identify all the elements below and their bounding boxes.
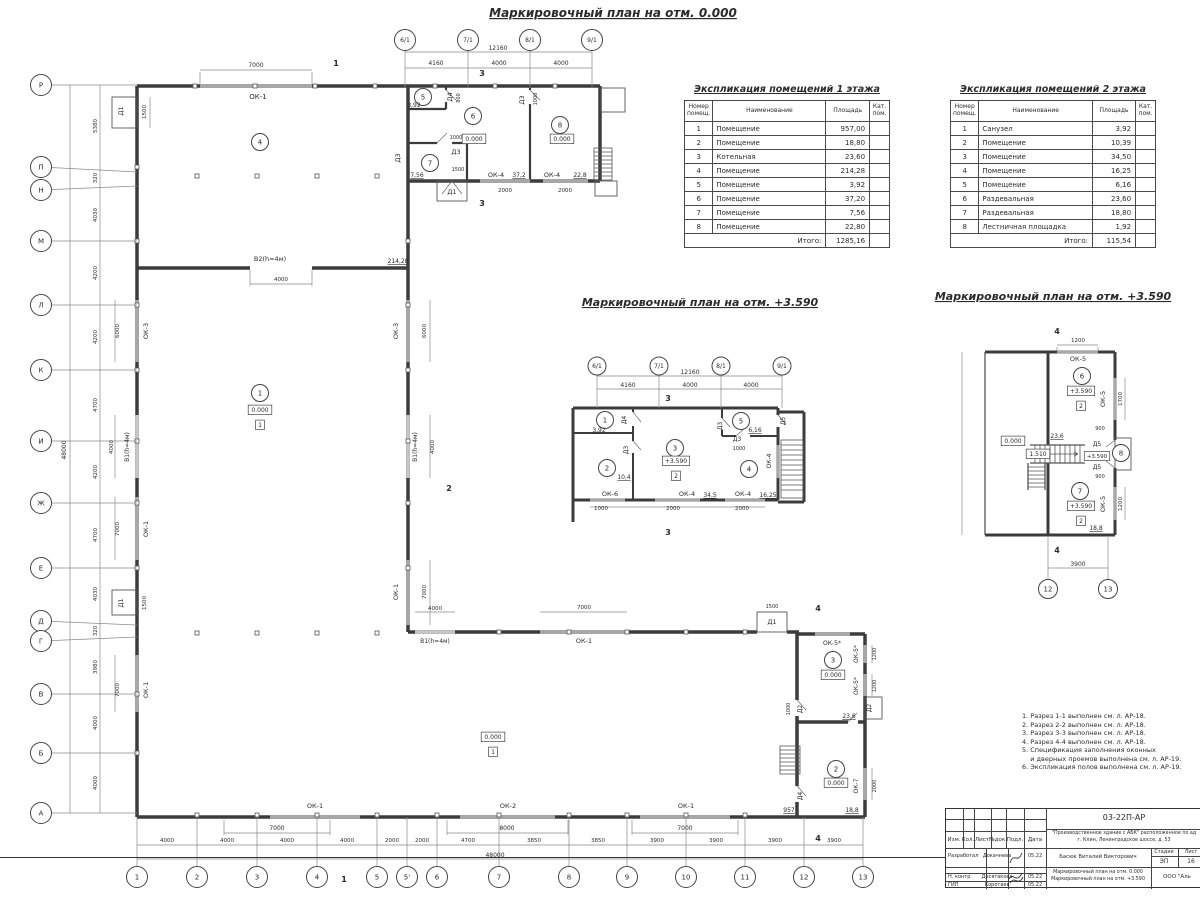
plan-label: 900 [1095, 426, 1105, 432]
plan-label: 23,6 [842, 713, 856, 720]
col-name: Наименование [979, 101, 1093, 122]
plan-label: 7000 [577, 605, 591, 611]
room-number: 6 [685, 192, 713, 206]
plan-label: Д4 [797, 792, 804, 801]
note-line: 4. Разрез 4-4 выполнен см. л. АР-18. [1022, 738, 1200, 747]
room-number: 2 [951, 136, 979, 150]
room-cat [1136, 150, 1156, 164]
plan-label: 1200 [1118, 497, 1124, 511]
bubble-label: 1 [135, 874, 139, 882]
signature-marks [1008, 849, 1024, 887]
plan-label: Д1 [447, 188, 456, 196]
bubble-label: 7 [428, 160, 432, 168]
plan-label: 7000 [422, 585, 428, 599]
plan-label: Д3 [733, 436, 742, 443]
bubble-label: 8 [567, 874, 571, 882]
plan-label: 3,92 [592, 427, 606, 434]
project-name-line1: "Производственное здание с АБК" располож… [1052, 831, 1196, 836]
plan-label: 5380 [93, 119, 99, 133]
room-cat [870, 164, 890, 178]
plan-label: 1500 [766, 604, 779, 610]
plan-label: 1 [491, 749, 495, 756]
bubble-label: 1 [258, 390, 262, 398]
note-line: 5. Спецификация заполнения оконных [1022, 746, 1200, 755]
plan-label: 0.000 [824, 672, 841, 679]
plan-label: 18,8 [1089, 525, 1103, 532]
plan-label: ОК-1 [678, 802, 694, 810]
plan-label: ОК-5* [823, 640, 841, 647]
plan-label: В1(h=4м) [412, 432, 419, 462]
bubble-label: 8/1 [525, 37, 535, 44]
role-developer: Разработал [948, 853, 978, 859]
main-plan-title: Маркировочный план на отм. 0.000 [489, 6, 737, 20]
plan-label: Д4 [446, 92, 454, 101]
plan-label: 214,28 [388, 258, 409, 265]
col-data: Дата [1028, 837, 1042, 843]
col-list: Лист [975, 837, 989, 843]
plan-label: 1500 [142, 105, 148, 119]
table-row: 2 Помещение 10,39 [951, 136, 1156, 150]
tb-title-line1: Маркировочный план на отм. 0.000 [1053, 870, 1143, 875]
plan-label: Д2 [797, 705, 804, 714]
room-name: Помещение [979, 178, 1093, 192]
plan-label: ОК-3 [142, 323, 150, 339]
plan-label: 1200 [872, 648, 878, 661]
plan-label: Д4 [621, 416, 628, 425]
plan-label: 4 [815, 834, 821, 843]
plan-label: Д3 [394, 153, 402, 162]
room-name: Лестничная площадка [979, 220, 1093, 234]
plan-label: 1200 [1071, 338, 1085, 344]
sheet-number: 16 [1187, 858, 1195, 865]
plan-label: 320 [93, 172, 99, 183]
bubble-label: 2 [195, 874, 199, 882]
bubble-label: 5 [375, 874, 379, 882]
plan-label: В1(h=4м) [124, 432, 131, 462]
room-number: 8 [685, 220, 713, 234]
bubble-label: 3 [255, 874, 259, 882]
plan-label: 7000 [248, 62, 263, 69]
plan-label: ОК-1 [307, 802, 323, 810]
plan-label: Д5 [1093, 464, 1102, 471]
col-podl: Подл. [1007, 837, 1024, 843]
plan-label: 4000 [93, 716, 99, 730]
notes-list: 1. Разрез 1-1 выполнен см. л. АР-18.2. Р… [1022, 712, 1200, 772]
room-number: 4 [685, 164, 713, 178]
doc-number: 03-22П-АР [1103, 813, 1145, 822]
room-area: 18,80 [826, 136, 870, 150]
bubble-label: М [38, 238, 44, 246]
plan-label: 1200 [872, 680, 878, 693]
room-area: 214,28 [826, 164, 870, 178]
room-area: 3,92 [1092, 122, 1135, 136]
room-area: 3,92 [826, 178, 870, 192]
plan-label: Д3 [717, 422, 724, 431]
plan-label: 6000 [115, 324, 121, 338]
plan-label: 4200 [93, 330, 99, 344]
date-developer: 05.22 [1028, 853, 1042, 859]
room-cat [870, 136, 890, 150]
total-value: 1285,16 [826, 234, 870, 248]
bubble-label: Е [39, 565, 43, 573]
plan-label: 4 [815, 604, 821, 613]
room-cat [870, 150, 890, 164]
plan-label: 2000 [735, 506, 749, 512]
plan-label: 4 [1054, 327, 1060, 336]
room-name: Помещение [713, 206, 826, 220]
room-cat [870, 206, 890, 220]
bubble-label: 13 [859, 874, 868, 882]
plan-label: 4000 [491, 60, 506, 67]
plan-label: ОК-2 [500, 802, 516, 810]
plan-label: 7000 [269, 825, 284, 832]
bubble-label: Л [38, 302, 43, 310]
bubble-label: А [39, 810, 44, 818]
table-row: 3 Котельная 23,60 [685, 150, 890, 164]
room-name: Помещение [713, 122, 826, 136]
bubble-label: И [38, 438, 43, 446]
col-area: Площадь [826, 101, 870, 122]
plan-label: ОК-4 [679, 490, 695, 498]
plan-label: 1500 [452, 167, 465, 173]
plan-label: 4000 [340, 838, 354, 844]
col-number: Номер помещ. [685, 101, 713, 122]
col-area: Площадь [1092, 101, 1135, 122]
plan-label: 34,5 [703, 492, 717, 499]
bubble-label: 10 [682, 874, 691, 882]
bubble-label: Н [38, 187, 43, 195]
bubble-label: 6 [471, 113, 476, 121]
plan-label: 2 [1079, 518, 1083, 525]
bubble-label: 7 [1078, 488, 1082, 496]
table-row: 8 Помещение 22,80 [685, 220, 890, 234]
plan-label: 4000 [109, 440, 115, 454]
table-row: 4 Помещение 16,25 [951, 164, 1156, 178]
plan-label: 4000 [93, 776, 99, 790]
room-number: 1 [951, 122, 979, 136]
table-row: 6 Помещение 37,20 [685, 192, 890, 206]
room-name: Помещение [713, 220, 826, 234]
note-line: 3. Разрез 3-3 выполнен см. л. АР-18. [1022, 729, 1200, 738]
bubble-label: 2 [605, 465, 609, 473]
bubble-label: 11 [741, 874, 750, 882]
table-row: 5 Помещение 6,16 [951, 178, 1156, 192]
note-line: и дверных проемов выполнена см. л. АР-19… [1022, 755, 1200, 764]
plan-label: 3900 [1070, 561, 1085, 568]
room-name: Раздевальная [979, 192, 1093, 206]
bubble-label: Р [39, 82, 43, 90]
plan-label: 4030 [93, 587, 99, 601]
plan-label: 22,8 [573, 172, 587, 179]
plan-label: 3850 [527, 838, 541, 844]
plan-label: 1000 [733, 446, 746, 452]
table-row: 5 Помещение 3,92 [685, 178, 890, 192]
plan-label: 4030 [93, 208, 99, 222]
bubble-label: К [39, 367, 44, 375]
bubble-label: 5' [404, 874, 410, 882]
total-label: Итого: [685, 234, 826, 248]
bubble-label: 4 [747, 466, 752, 474]
bubble-label: Б [39, 750, 44, 758]
plan-label: 2000 [385, 838, 399, 844]
plan-label: ОК-5 [1099, 391, 1107, 407]
room-area: 6,16 [1092, 178, 1135, 192]
bubble-label: Д [38, 618, 44, 626]
plan-label: 3850 [591, 838, 605, 844]
bubble-label: 6 [435, 874, 440, 882]
plan-label: 0.000 [827, 780, 844, 787]
company-name: ООО "Аль [1163, 874, 1191, 880]
room-number: 5 [951, 178, 979, 192]
table-row: 3 Помещение 34,50 [951, 150, 1156, 164]
plan-label: 4000 [428, 606, 442, 612]
room-number: 3 [951, 150, 979, 164]
room-name: Котельная [713, 150, 826, 164]
table-row: 6 Раздевальная 23,60 [951, 192, 1156, 206]
room-number: 6 [951, 192, 979, 206]
room-cat [1136, 178, 1156, 192]
bubble-label: 9/1 [777, 363, 787, 370]
plan-label: 4000 [743, 382, 758, 389]
plan-label: ОК-1 [142, 682, 150, 698]
bubble-label: 9/1 [587, 37, 597, 44]
col-cat: Кат. пом. [1136, 101, 1156, 122]
room-schedule-floor2: Экспликация помещений 2 этажа Номер поме… [950, 84, 1156, 248]
plan-label: 4200 [93, 266, 99, 280]
plan-label: 18,8 [845, 807, 859, 814]
plan-label: 1 [341, 875, 347, 884]
plan-label: 3 [479, 199, 485, 208]
plan-label: 3900 [768, 838, 782, 844]
room-name: Помещение [979, 150, 1093, 164]
role-gip: ГИП [948, 882, 959, 888]
plan-label: ОК-1 [249, 93, 266, 101]
plan-label: 0.000 [484, 734, 501, 741]
total-value: 115,54 [1092, 234, 1135, 248]
plan-label: Д5 [780, 417, 787, 426]
plan-label: +3.590 [1070, 388, 1092, 395]
room-number: 7 [951, 206, 979, 220]
plan-label: 1700 [1118, 392, 1124, 406]
plan-label: 16,25 [759, 492, 776, 499]
right-plan-title: Маркировочный план на отм. +3.590 [935, 290, 1172, 303]
plan-label: 6,16 [748, 427, 762, 434]
plan-label: 4700 [461, 838, 475, 844]
plan-label: ОК-4 [735, 490, 751, 498]
plan-label: ОК-4 [766, 453, 773, 468]
room-area: 1,92 [1092, 220, 1135, 234]
plan-label: 10,4 [617, 474, 631, 481]
table-row: 1 Помещение 957,00 [685, 122, 890, 136]
plan-label: 2 [446, 484, 452, 493]
plan-label: 800 [456, 93, 462, 103]
table-row: 8 Лестничная площадка 1,92 [951, 220, 1156, 234]
stage-label: Стадия [1154, 849, 1173, 855]
plan-label: 0.000 [1004, 438, 1021, 445]
plan-label: 1000 [450, 135, 463, 141]
room-cat [1136, 192, 1156, 206]
room-name: Санузел [979, 122, 1093, 136]
col-cat: Кат. пом. [870, 101, 890, 122]
plan-label: 0.000 [465, 136, 482, 143]
plan-label: 1.510 [1029, 451, 1046, 458]
plan-label: Д1 [117, 598, 125, 607]
plan-label: ОК-5 [1099, 496, 1107, 512]
plan-label: 23,6 [1050, 433, 1064, 440]
tb-title-line2: Маркировочный план на отм. +3.590 [1051, 877, 1145, 882]
bubble-label: Г [39, 638, 43, 646]
table-title: Экспликация помещений 1 этажа [684, 84, 890, 95]
plan-label: 7000 [115, 683, 121, 697]
bubble-label: 8 [558, 122, 562, 130]
plan-label: 3900 [709, 838, 723, 844]
room-cat [870, 220, 890, 234]
plan-label: ОК-3 [392, 323, 400, 339]
plan-label: В2(h=4м) [254, 255, 286, 263]
drawing-sheet: РПНМЛКИЖЕДГВБА123455'6789101112136/17/18… [0, 0, 1200, 900]
room-area: 34,50 [1092, 150, 1135, 164]
table-row: 2 Помещение 18,80 [685, 136, 890, 150]
bubble-label: Ж [37, 500, 45, 508]
bubble-label: 6 [1080, 373, 1085, 381]
bubble-label: 3 [673, 445, 677, 453]
plan-label: 3900 [650, 838, 664, 844]
plan-label: Д2 [866, 704, 873, 713]
bubble-label: 5 [739, 418, 743, 426]
plan-label: Д3 [518, 95, 526, 104]
room-name: Помещение [713, 136, 826, 150]
total-cat [1136, 234, 1156, 248]
plan-label: 0.000 [251, 407, 268, 414]
room-schedule-floor1: Экспликация помещений 1 этажа Номер поме… [684, 84, 890, 248]
plan-label: 3 [479, 69, 485, 78]
plan-label: 12160 [680, 369, 699, 376]
room-number: 3 [685, 150, 713, 164]
role-ncontr: Н. контр. [948, 874, 972, 880]
note-line: 6. Экспликация полов выполнена см. л. АР… [1022, 763, 1200, 772]
stage-value: ЭП [1160, 858, 1169, 865]
plan-label: 957 [783, 807, 795, 814]
table-total-row: Итого: 1285,16 [685, 234, 890, 248]
plan-label: 3 [665, 528, 671, 537]
bubble-label: 13 [1104, 586, 1113, 594]
plan-label: +3.590 [1070, 503, 1092, 510]
plan-label: 2000 [558, 188, 572, 194]
plan-label: 4000 [682, 382, 697, 389]
plan-label: Д1 [117, 106, 125, 115]
note-line: 1. Разрез 1-1 выполнен см. л. АР-18. [1022, 712, 1200, 721]
plan-label: 3 [665, 394, 671, 403]
bubble-label: 6/1 [400, 37, 410, 44]
table-row: 4 Помещение 214,28 [685, 164, 890, 178]
bubble-label: 7 [497, 874, 501, 882]
plan-label: Д5 [1093, 441, 1102, 448]
plan-label: ОК-4 [544, 171, 560, 179]
plan-label: Д1 [767, 618, 776, 626]
plan-label: ОК-5* [853, 645, 860, 663]
plan-label: 4160 [428, 60, 443, 67]
date-gip: 05.22 [1028, 882, 1042, 888]
project-name-line2: г. Клин, Ленинградское шоссе, д. 53 [1077, 838, 1170, 843]
table-row: 7 Помещение 7,56 [685, 206, 890, 220]
room-cat [870, 178, 890, 192]
plan-label: 7000 [115, 522, 121, 536]
col-ndok: №док. [989, 837, 1007, 843]
table-header-row: Номер помещ. Наименование Площадь Кат. п… [951, 101, 1156, 122]
room-number: 8 [951, 220, 979, 234]
plan-label: 2000 [415, 838, 429, 844]
plan-label: 12160 [488, 45, 507, 52]
plan-label: 1 [258, 422, 262, 429]
plan-label: 4700 [93, 398, 99, 412]
room-cat [1136, 206, 1156, 220]
room-area: 957,00 [826, 122, 870, 136]
bubble-label: 2 [834, 766, 838, 774]
plan-label: 1500 [142, 596, 148, 610]
plan-label: 2 [1079, 403, 1083, 410]
plan-label: 4000 [160, 838, 174, 844]
plan-label: 1000 [533, 93, 539, 106]
plan-label: 1 [333, 59, 339, 68]
room-number: 1 [685, 122, 713, 136]
plan-label: 2 [674, 473, 678, 480]
table-header-row: Номер помещ. Наименование Площадь Кат. п… [685, 101, 890, 122]
room-cat [1136, 136, 1156, 150]
plan-label: 4000 [220, 838, 234, 844]
room-name: Помещение [713, 192, 826, 206]
plan-label: 900 [1095, 474, 1105, 480]
room-area: 22,80 [826, 220, 870, 234]
plan-label: 7,56 [410, 172, 424, 179]
plan-label: 37,2 [512, 172, 526, 179]
room-area: 23,60 [1092, 192, 1135, 206]
room-name: Помещение [979, 136, 1093, 150]
bubble-label: 8/1 [716, 363, 726, 370]
col-izm: Изм. [948, 837, 961, 843]
plan-label: ОК-6 [602, 490, 618, 498]
table-row: 7 Раздевальная 18,80 [951, 206, 1156, 220]
room-name: Помещение [979, 164, 1093, 178]
plan-label: 7000 [677, 825, 692, 832]
plan-label: 48000 [61, 440, 68, 459]
plan-label: 2000 [666, 506, 680, 512]
room-number: 4 [951, 164, 979, 178]
bubble-label: 8 [1119, 450, 1123, 458]
plan-label: ОК-4 [488, 171, 504, 179]
plan-label: 0.000 [553, 136, 570, 143]
room-cat [870, 192, 890, 206]
room-area: 18,80 [1092, 206, 1135, 220]
plan-label: +3.590 [665, 458, 687, 465]
plan-label: 4160 [620, 382, 635, 389]
room-number: 5 [685, 178, 713, 192]
plan-label: 2000 [872, 780, 878, 793]
plan-label: 1000 [594, 506, 608, 512]
table-row: 1 Санузел 3,92 [951, 122, 1156, 136]
sheet-label: Лист [1185, 849, 1198, 855]
col-name: Наименование [713, 101, 826, 122]
plan-label: +3.590 [1087, 454, 1108, 460]
bubble-label: 4 [258, 139, 263, 147]
plan-label: 4000 [274, 277, 288, 283]
bubble-label: 12 [1044, 586, 1053, 594]
room-name: Помещение [713, 178, 826, 192]
plan-label: Д3 [623, 446, 630, 455]
room-area: 7,56 [826, 206, 870, 220]
plan-label: 4000 [430, 440, 436, 454]
sheet-bottom-border [0, 857, 945, 858]
bubble-label: 1 [603, 417, 607, 425]
